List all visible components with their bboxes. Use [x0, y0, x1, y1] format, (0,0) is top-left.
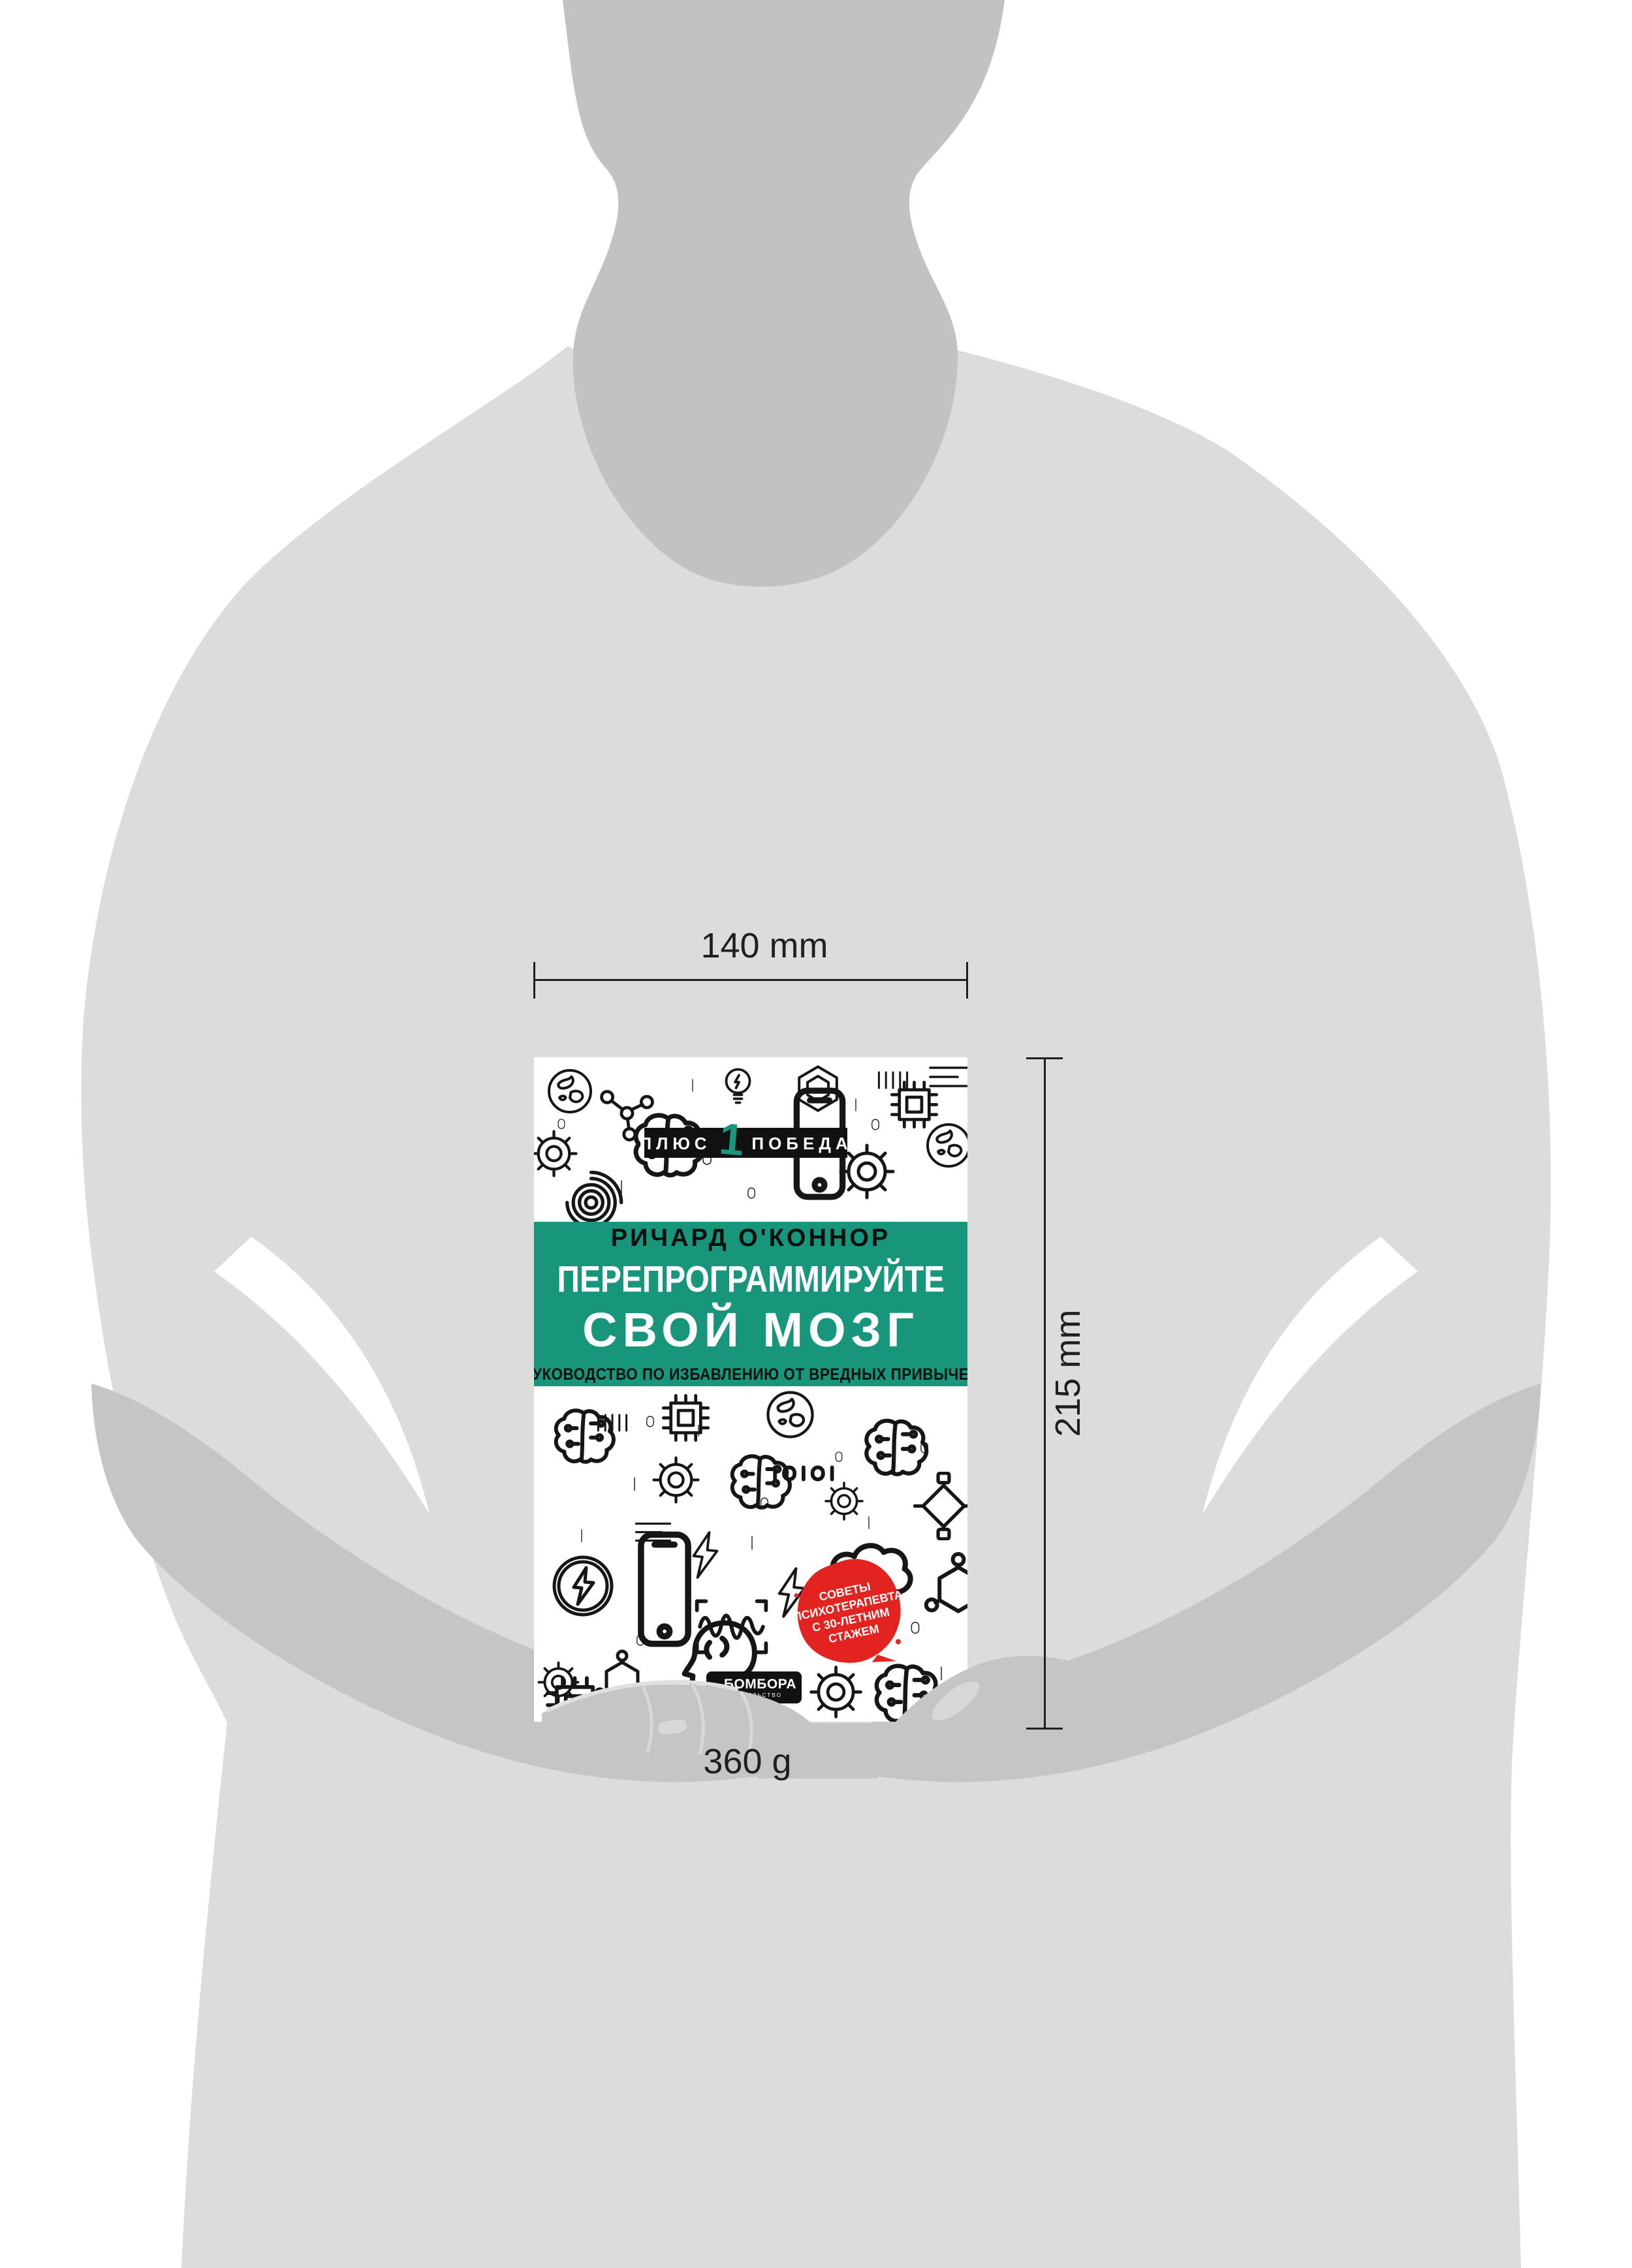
hand-right: [883, 1656, 1129, 1777]
weight-label: 360 g: [650, 1741, 845, 1782]
width-label: 140 mm: [667, 925, 862, 966]
height-dimension-tick-bottom: [1026, 1728, 1063, 1730]
width-dimension-tick-right: [966, 962, 968, 999]
hands-overlay: [0, 0, 1632, 2268]
width-dimension-line: [534, 979, 967, 981]
height-dimension-line: [1044, 1058, 1046, 1729]
height-label: 215 mm: [1048, 1275, 1088, 1471]
width-dimension-tick-left: [533, 962, 535, 999]
product-dimensions-shot: ПЛЮС 1 ПОБЕДА РИЧАРД О'КОННОР ПЕРЕПРОГРА…: [0, 0, 1632, 2268]
height-dimension-tick-top: [1026, 1057, 1063, 1059]
